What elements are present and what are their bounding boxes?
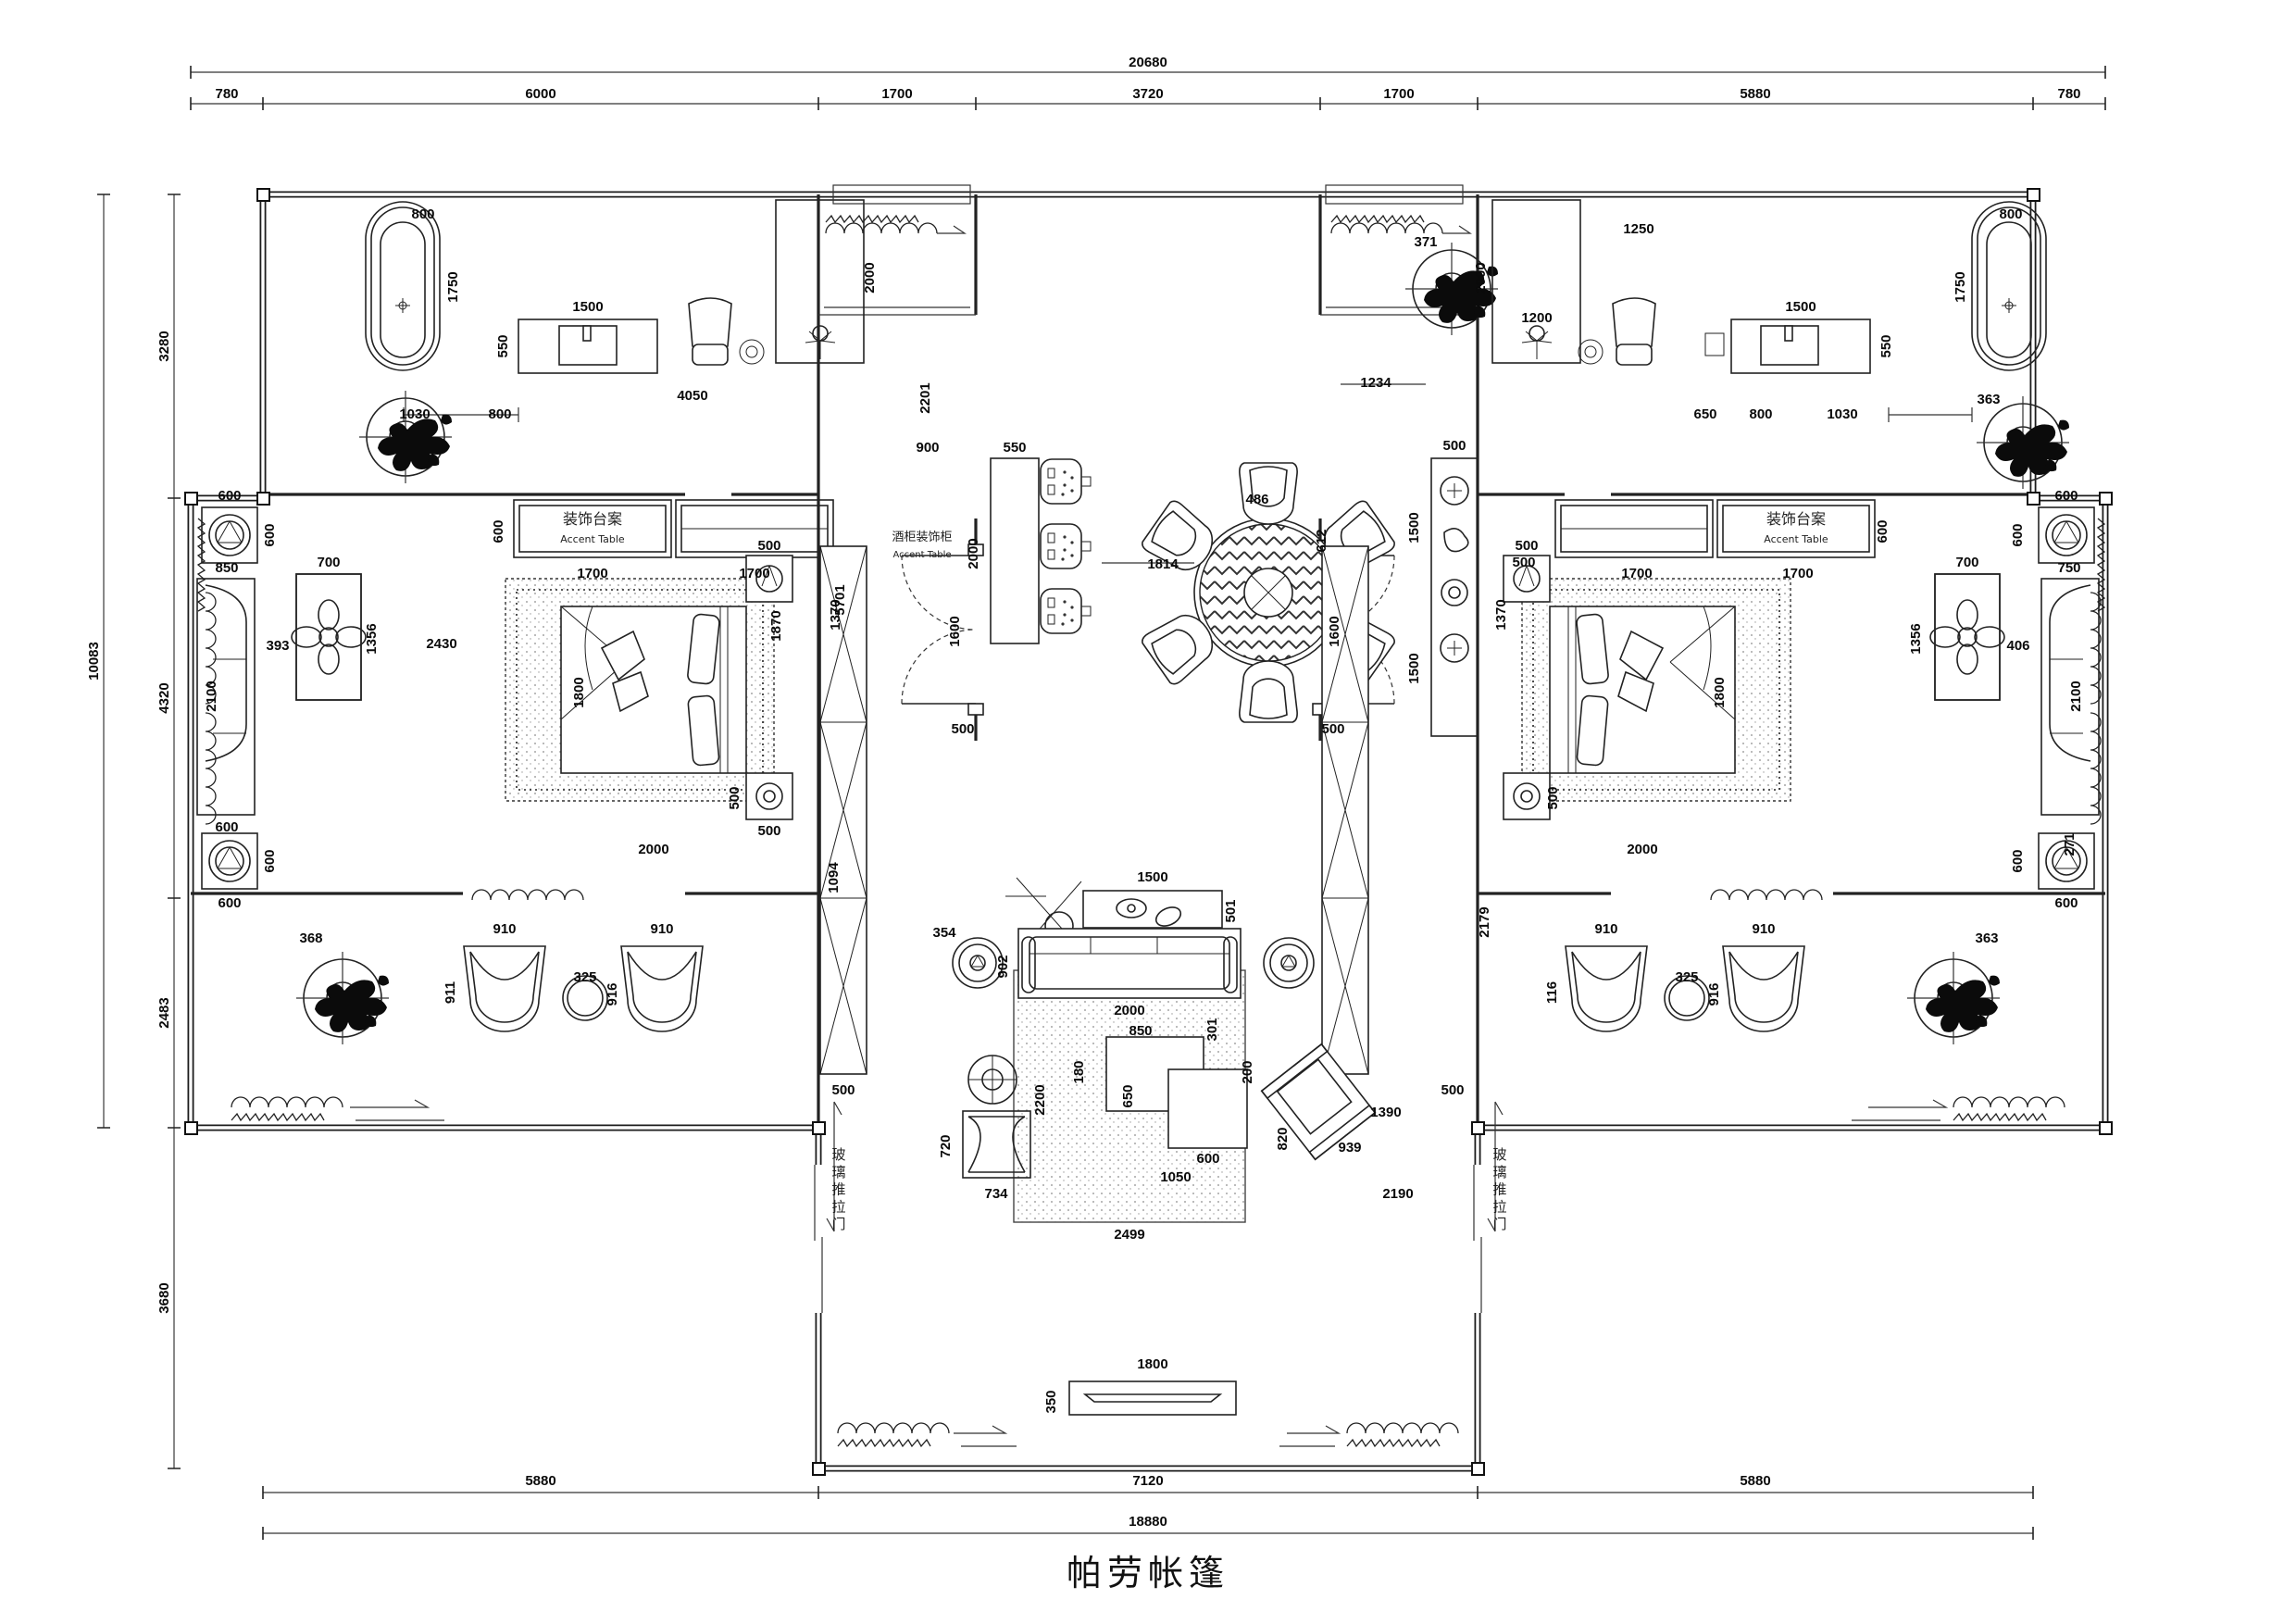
dimension-label: 1030 xyxy=(1827,406,1857,422)
dimension-label: 301 xyxy=(1204,1018,1220,1041)
dimension-label: 800 xyxy=(488,406,511,422)
furniture-label: 装饰台案 xyxy=(563,510,622,528)
furniture-label: Accent Table xyxy=(1764,533,1828,545)
dimension-label: 1600 xyxy=(947,616,963,646)
dimension-label: 734 xyxy=(984,1186,1008,1202)
dimension-label: 500 xyxy=(1441,1082,1464,1098)
dimension-label: 780 xyxy=(2057,86,2080,102)
dimension-label: 500 xyxy=(1442,438,1466,454)
furniture-label: Accent Table xyxy=(560,533,625,545)
dimension-label: 700 xyxy=(317,555,340,570)
dimension-label: 910 xyxy=(1752,921,1775,937)
dimension-label: 2201 xyxy=(917,382,933,413)
dimension-label: 5880 xyxy=(525,1473,555,1489)
dimension-label: 600 xyxy=(1875,519,1890,543)
dimension-label: 650 xyxy=(1693,406,1716,422)
furniture-label: 装饰台案 xyxy=(1766,510,1826,528)
furniture-label: Accent Table xyxy=(892,550,951,560)
dimension-label: 180 xyxy=(1071,1060,1087,1083)
dimension-label: 500 xyxy=(1512,555,1535,570)
nightstand-bottom-right xyxy=(1504,773,1550,819)
dimension-label: 1800 xyxy=(1712,677,1728,707)
dimension-label: 5880 xyxy=(1740,1473,1770,1489)
dimension-label: 1250 xyxy=(1623,221,1653,237)
dimension-label: 325 xyxy=(1675,969,1698,985)
bed-icon-right xyxy=(1550,606,1735,773)
dimension-label: 2190 xyxy=(1382,1186,1413,1202)
dimension-label: 910 xyxy=(650,921,673,937)
dimension-label: 900 xyxy=(916,440,939,456)
dimension-label: 720 xyxy=(938,1134,954,1157)
dimension-label: 2000 xyxy=(966,538,981,568)
dimension-label: 2000 xyxy=(1627,842,1657,857)
glass-door-label: 玻璃推拉门 xyxy=(1492,1146,1506,1232)
dimension-label: 600 xyxy=(2054,895,2078,911)
dimension-label: 1500 xyxy=(1406,653,1422,683)
dimension-label: 902 xyxy=(995,955,1011,978)
dimension-label: 2000 xyxy=(1114,1003,1144,1018)
dimension-label: 600 xyxy=(1196,1151,1219,1167)
dimension-label: 2000 xyxy=(638,842,668,857)
dimension-label: 1200 xyxy=(1521,310,1552,326)
dimension-label: 910 xyxy=(1594,921,1617,937)
dimension-label: 800 xyxy=(1749,406,1772,422)
dimension-label: 4050 xyxy=(677,388,707,404)
dimension-label: 2200 xyxy=(1032,1084,1048,1115)
dimension-label: 7120 xyxy=(1132,1473,1163,1489)
lamp-table xyxy=(968,1056,1017,1104)
drawing-title: 帕劳帐篷 xyxy=(1067,1553,1229,1593)
dimension-label: 500 xyxy=(727,786,742,809)
dimension-label: 116 xyxy=(1544,981,1560,1004)
dimension-label: 911 xyxy=(443,981,458,1004)
dimension-label: 1234 xyxy=(1360,375,1391,391)
glass-door-label: 玻璃推拉门 xyxy=(831,1146,845,1232)
dimension-label: 1800 xyxy=(1137,1356,1167,1372)
dimension-label: 2179 xyxy=(1477,906,1492,937)
dimension-label: 1500 xyxy=(572,299,603,315)
dimension-label: 650 xyxy=(1120,1084,1136,1107)
dimension-label: 1500 xyxy=(1406,512,1422,543)
dimension-label: 500 xyxy=(757,823,780,839)
dimension-label: 1094 xyxy=(826,862,842,893)
dimension-label: 500 xyxy=(1545,786,1561,809)
dimension-label: 600 xyxy=(218,488,241,504)
dimension-label: 363 xyxy=(1977,392,2000,407)
dimension-label: 393 xyxy=(266,638,289,654)
dimension-label: 750 xyxy=(2057,560,2080,576)
dining-chair-s xyxy=(1240,661,1297,722)
dimension-label: 2000 xyxy=(1473,262,1489,293)
dimension-label: 800 xyxy=(1999,206,2022,222)
floor-plan-sheet: 2068078060001700372017005880780100833280… xyxy=(0,0,2296,1624)
dimension-label: 368 xyxy=(299,931,322,946)
dimension-label: 1700 xyxy=(1383,86,1414,102)
dimension-label: 600 xyxy=(2010,849,2026,872)
dimension-label: 1370 xyxy=(1493,599,1509,630)
dimension-label: 2499 xyxy=(1114,1227,1144,1243)
dimension-label: 1356 xyxy=(1908,623,1924,654)
dimension-label: 6000 xyxy=(525,86,555,102)
dimension-label: 1700 xyxy=(1621,566,1652,581)
dimension-label: 1500 xyxy=(1137,869,1167,885)
dimension-label: 800 xyxy=(411,206,434,222)
dimension-label: 2100 xyxy=(2068,681,2084,711)
dimension-label: 500 xyxy=(951,721,974,737)
dimension-label: 600 xyxy=(215,819,238,835)
furniture-label: 酒柜装饰柜 xyxy=(892,531,952,544)
dimension-label: 1050 xyxy=(1160,1169,1191,1185)
dimension-label: 371 xyxy=(1414,234,1437,250)
dimension-label: 612 xyxy=(1314,529,1329,552)
dimension-label: 350 xyxy=(1043,1390,1059,1413)
dimension-label: 5701 xyxy=(832,584,848,615)
dimension-label: 1356 xyxy=(364,623,380,654)
dimension-label: 18880 xyxy=(1129,1514,1167,1530)
dimension-label: 2000 xyxy=(862,262,878,293)
dimension-label: 2430 xyxy=(426,636,456,652)
dimension-label: 500 xyxy=(757,538,780,554)
dimension-label: 1870 xyxy=(768,610,784,641)
dimension-label: 600 xyxy=(262,849,278,872)
coffee-table-2 xyxy=(1168,1069,1247,1148)
dimension-label: 910 xyxy=(493,921,516,937)
dimension-label: 406 xyxy=(2006,638,2029,654)
dimension-label: 850 xyxy=(1129,1023,1152,1039)
dimension-label: 550 xyxy=(495,334,511,357)
dimension-label: 600 xyxy=(2010,523,2026,546)
bed-icon xyxy=(561,606,746,773)
dimension-label: 10083 xyxy=(86,642,102,681)
dimension-label: 501 xyxy=(1223,899,1239,922)
dimension-label: 1700 xyxy=(739,566,769,581)
dimension-label: 1750 xyxy=(445,271,461,302)
dimension-label: 1700 xyxy=(881,86,912,102)
dimension-label: 354 xyxy=(932,925,956,941)
dimension-label: 4320 xyxy=(156,682,172,713)
dimension-label: 780 xyxy=(215,86,238,102)
dimension-label: 1814 xyxy=(1147,556,1179,572)
dimension-label: 1500 xyxy=(1785,299,1816,315)
dimension-label: 5880 xyxy=(1740,86,1770,102)
dimension-label: 1750 xyxy=(1953,271,1968,302)
floor-plan-drawing: 2068078060001700372017005880780100833280… xyxy=(0,0,2296,1624)
dimension-label: 550 xyxy=(1878,334,1894,357)
dimension-label: 916 xyxy=(605,982,620,1006)
dimension-label: 1600 xyxy=(1327,616,1342,646)
dimension-label: 939 xyxy=(1338,1140,1361,1156)
dimension-label: 1800 xyxy=(571,677,587,707)
dimension-label: 20680 xyxy=(1129,55,1167,70)
dimension-label: 3720 xyxy=(1132,86,1163,102)
dimension-label: 600 xyxy=(262,523,278,546)
dimension-label: 1700 xyxy=(577,566,607,581)
console-table xyxy=(1083,891,1222,930)
dimension-label: 3280 xyxy=(156,331,172,361)
dimension-label: 916 xyxy=(1706,982,1722,1006)
dimension-label: 363 xyxy=(1975,931,1998,946)
dimension-label: 1390 xyxy=(1370,1105,1401,1120)
dimension-label: 325 xyxy=(573,969,596,985)
dimension-label: 700 xyxy=(1955,555,1978,570)
flower-table-right xyxy=(1930,574,2004,700)
dimension-label: 2483 xyxy=(156,997,172,1028)
dimension-label: 820 xyxy=(1275,1127,1291,1150)
dimension-label: 486 xyxy=(1245,492,1268,507)
dimension-label: 600 xyxy=(2054,488,2078,504)
dimension-label: 1030 xyxy=(399,406,430,422)
dimension-label: 850 xyxy=(215,560,238,576)
dimension-label: 500 xyxy=(1515,538,1538,554)
dimension-label: 1700 xyxy=(1782,566,1813,581)
dimension-label: 3680 xyxy=(156,1282,172,1313)
dimension-label: 2100 xyxy=(204,681,219,711)
dimension-label: 550 xyxy=(1003,440,1026,456)
dimension-label: 500 xyxy=(1321,721,1344,737)
sheet-background xyxy=(0,0,2296,1624)
dimension-label: 600 xyxy=(218,895,241,911)
flower-table-left xyxy=(292,574,366,700)
dimension-label: 600 xyxy=(491,519,506,543)
living-sofa xyxy=(1018,929,1241,998)
nightstand-bottom-left xyxy=(746,773,792,819)
dimension-label: 271 xyxy=(2062,832,2078,856)
dimension-label: 500 xyxy=(831,1082,855,1098)
dimension-label: 200 xyxy=(1240,1060,1255,1083)
